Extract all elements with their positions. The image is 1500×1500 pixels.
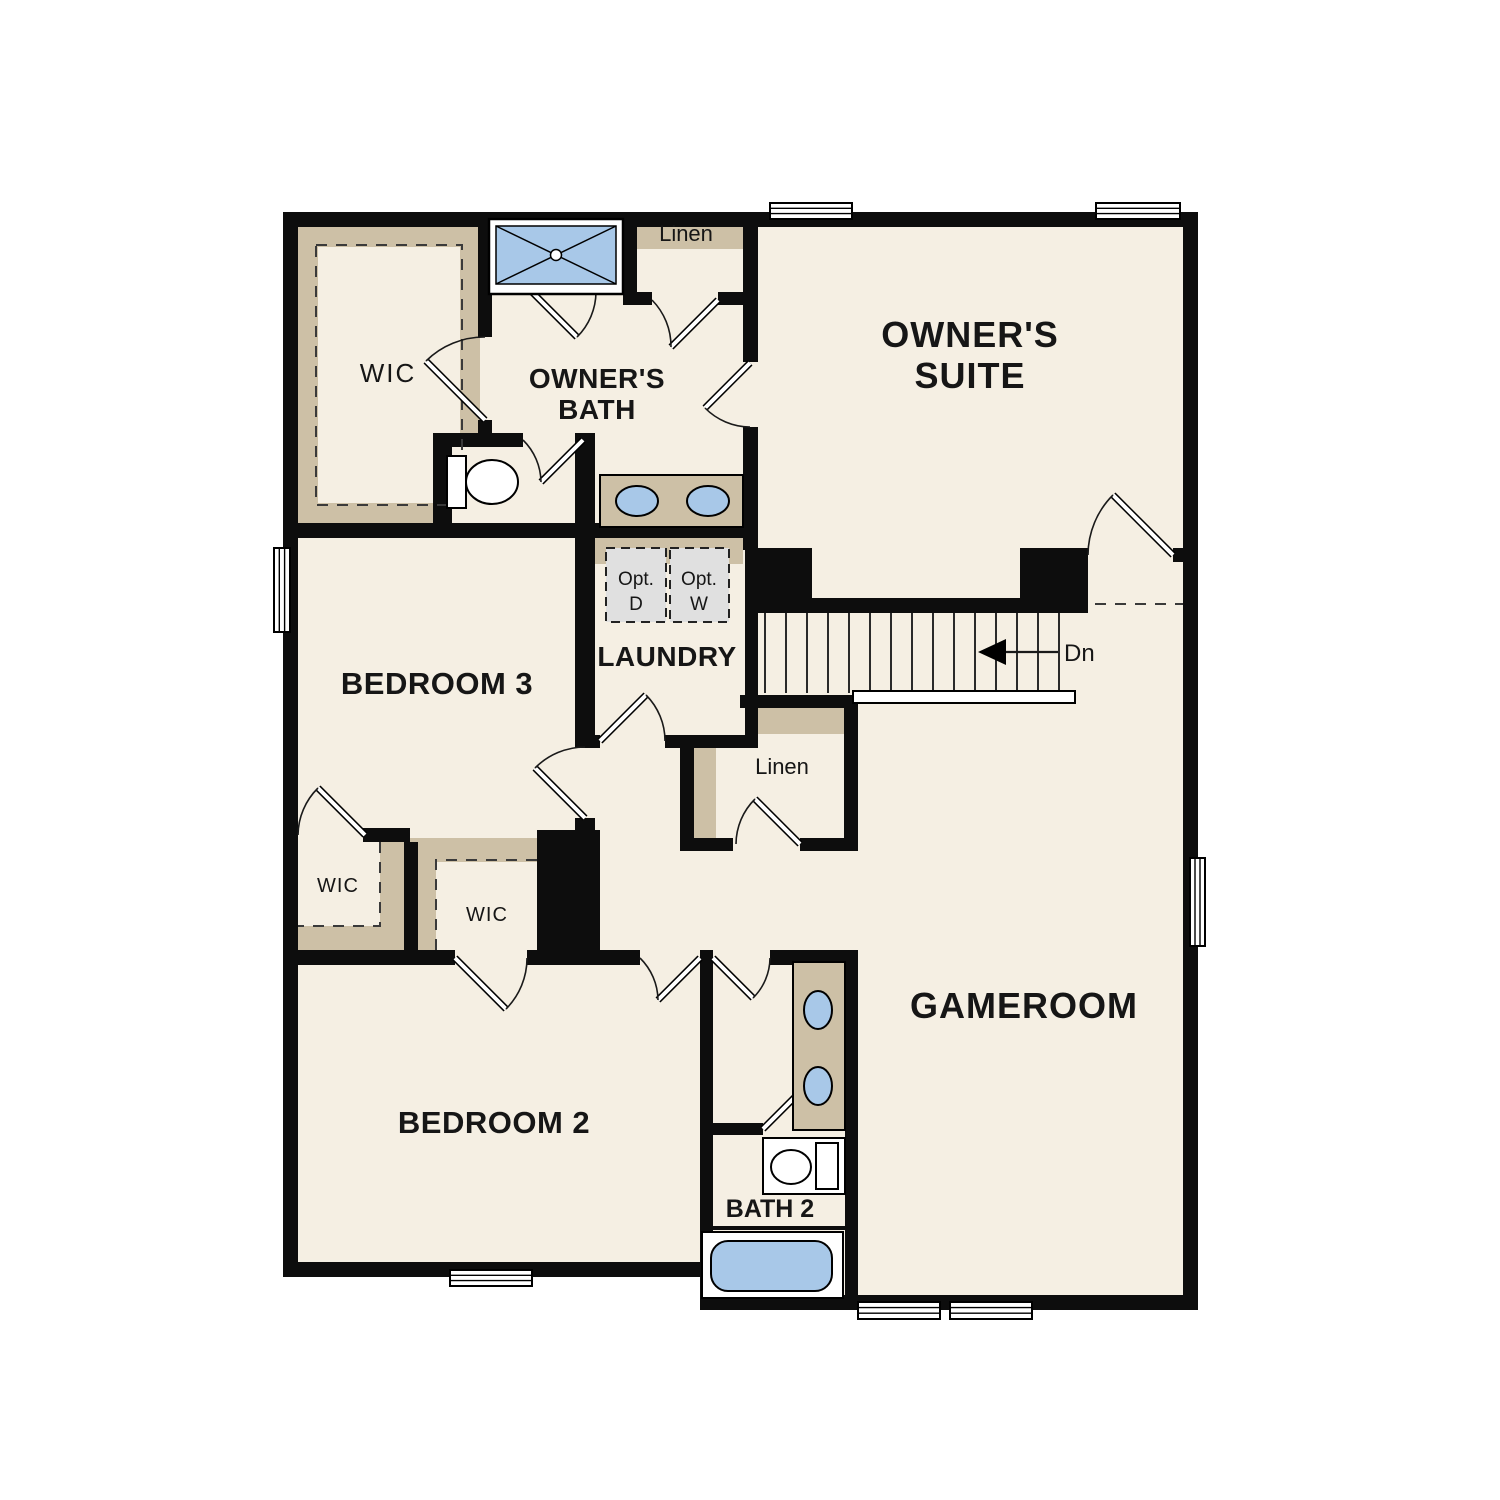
owners-suite-label-1: OWNER'S	[881, 314, 1059, 355]
wic-bedroom2-shelf-top	[410, 838, 537, 862]
wall-segment	[844, 695, 858, 851]
stair-direction-label: Dn	[1064, 640, 1095, 667]
wall-segment	[1183, 212, 1198, 1310]
wall-segment	[283, 212, 1198, 227]
wall-segment	[478, 420, 492, 435]
laundry-label: LAUNDRY	[597, 641, 736, 672]
wall-segment	[680, 742, 694, 851]
wall-segment	[845, 950, 858, 1304]
opt-dryer-line1: Opt.	[618, 569, 654, 590]
wall-segment	[527, 950, 600, 965]
wall-segment	[298, 950, 455, 965]
wall-segment	[740, 695, 858, 708]
double-sink-vanity-icon	[600, 475, 743, 527]
wall-segment	[404, 842, 418, 951]
wall-segment	[628, 292, 652, 305]
wall-segment	[623, 212, 637, 305]
wic-bedroom3-label: WIC	[317, 875, 359, 897]
opt-washer-line1: Opt.	[681, 569, 717, 590]
bathtub-icon	[702, 1232, 843, 1298]
window	[1096, 203, 1180, 219]
owners-suite-label-2: SUITE	[914, 355, 1025, 396]
linen-hall-shelf-top	[754, 708, 844, 734]
stair-handrail	[853, 691, 1075, 703]
wall-segment	[745, 613, 758, 748]
wall-segment	[743, 212, 758, 362]
wall-segment	[743, 427, 758, 550]
toilet-icon	[763, 1138, 845, 1194]
wall-segment	[745, 548, 812, 613]
bedroom3-label: BEDROOM 3	[341, 666, 533, 701]
linen-hall-label: Linen	[755, 754, 809, 779]
gameroom-label: GAMEROOM	[910, 985, 1138, 1026]
floor-plan-page: Dn	[0, 0, 1500, 1500]
floor-plan: Dn	[0, 0, 1500, 1500]
optional-dryer: Opt. D	[606, 548, 666, 622]
opt-dryer-line2: D	[629, 594, 643, 615]
wall-segment	[600, 950, 640, 965]
bedroom2-label: BEDROOM 2	[398, 1105, 590, 1140]
wall-segment	[283, 212, 298, 1277]
wall-segment	[713, 1123, 763, 1135]
wic-bedroom3-shelf-right	[380, 842, 404, 951]
bath2-label: BATH 2	[726, 1195, 814, 1223]
wall-segment	[680, 838, 733, 851]
wall-segment	[665, 735, 752, 748]
wall-segment	[1020, 548, 1088, 613]
wall-segment	[812, 598, 1020, 613]
linen-hall-shelf-left	[694, 742, 716, 838]
opt-washer-line2: W	[690, 594, 708, 615]
window	[274, 548, 290, 632]
window	[770, 203, 852, 219]
linen-bath-label: Linen	[659, 221, 713, 246]
window	[950, 1302, 1032, 1319]
wic-owners-label: WIC	[360, 358, 417, 388]
owners-bath-label-2: BATH	[558, 394, 636, 425]
wic-bedroom3-shelf-bottom	[298, 926, 380, 951]
wall-segment	[363, 828, 410, 842]
shower-pan-icon	[489, 219, 623, 294]
wall-segment	[1173, 548, 1183, 562]
window	[450, 1270, 532, 1286]
optional-washer: Opt. W	[670, 548, 729, 622]
double-sink-vanity-icon	[793, 962, 845, 1130]
wall-segment	[718, 292, 745, 305]
wic-bedroom2-label: WIC	[466, 904, 508, 926]
wall-segment	[575, 735, 600, 748]
toilet-icon	[447, 456, 518, 508]
window	[858, 1302, 940, 1319]
wall-segment	[537, 830, 600, 965]
owners-bath-label-1: OWNER'S	[529, 363, 665, 394]
wall-segment	[700, 1226, 845, 1230]
window	[1190, 858, 1205, 946]
wall-segment	[575, 538, 595, 747]
